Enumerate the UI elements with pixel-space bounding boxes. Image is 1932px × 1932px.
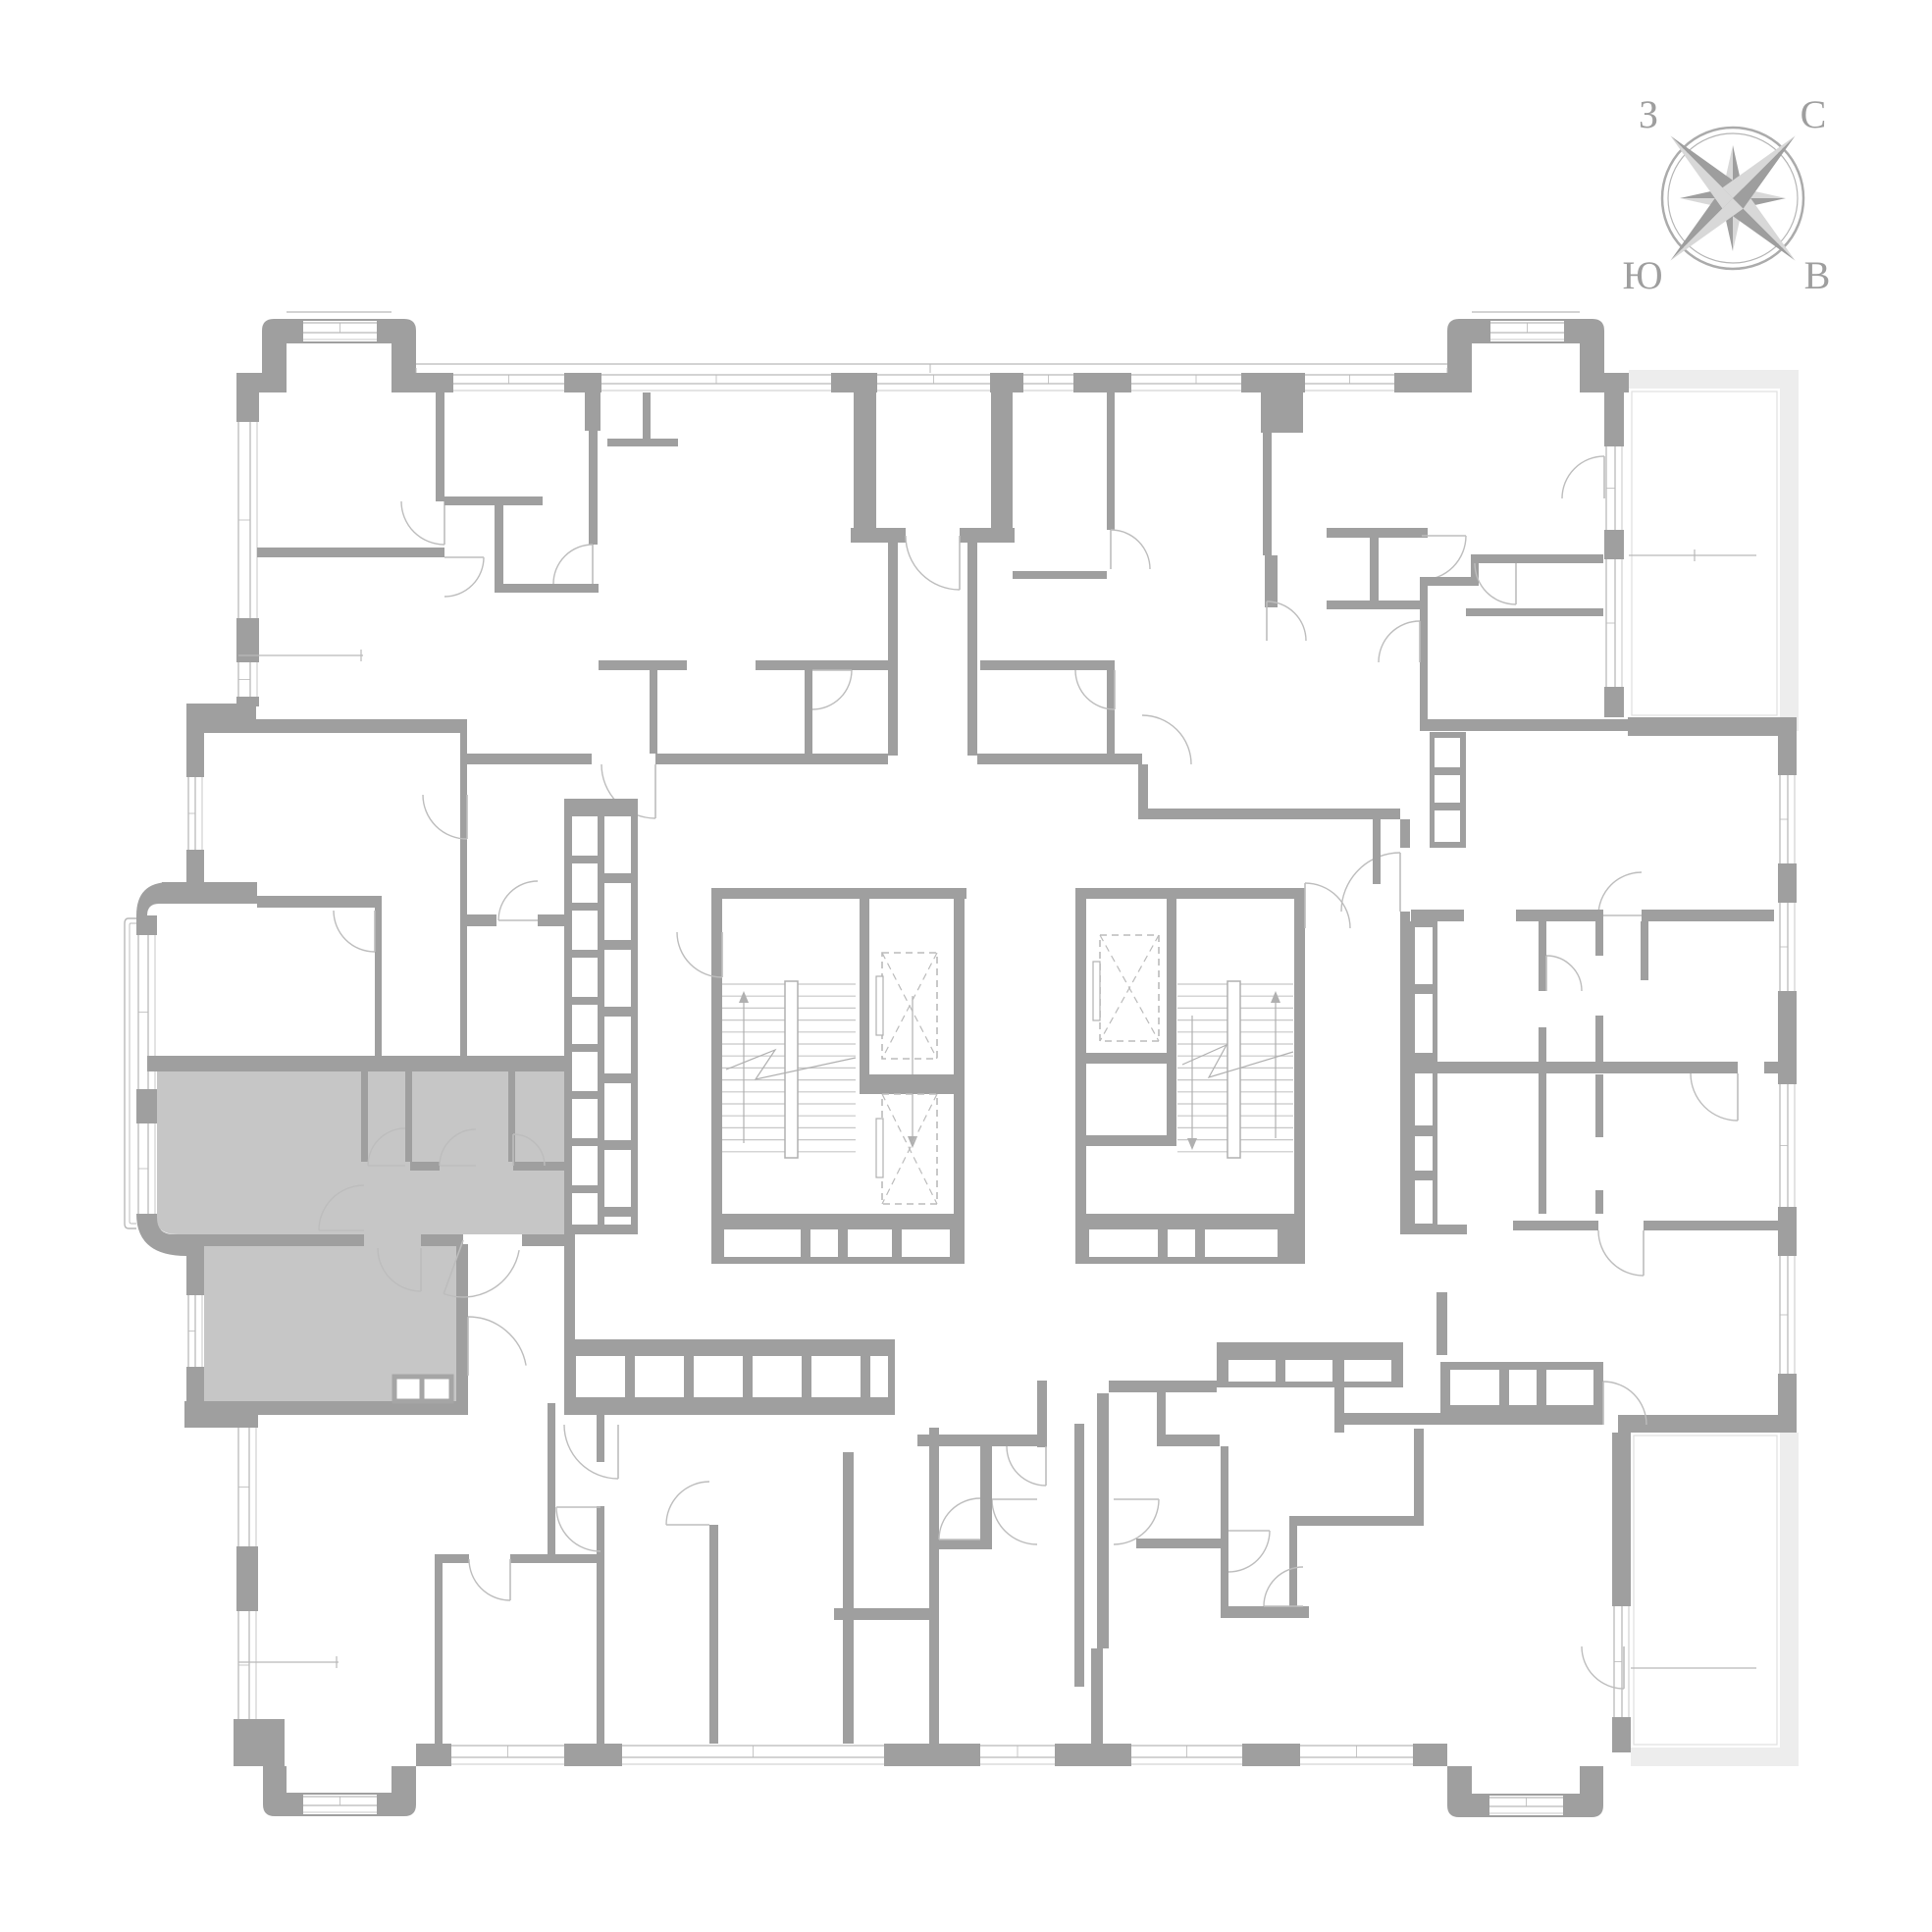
svg-text:С: С bbox=[1801, 92, 1827, 136]
svg-text:Ю: Ю bbox=[1622, 253, 1662, 297]
svg-text:З: З bbox=[1639, 92, 1658, 136]
svg-text:В: В bbox=[1804, 253, 1831, 297]
